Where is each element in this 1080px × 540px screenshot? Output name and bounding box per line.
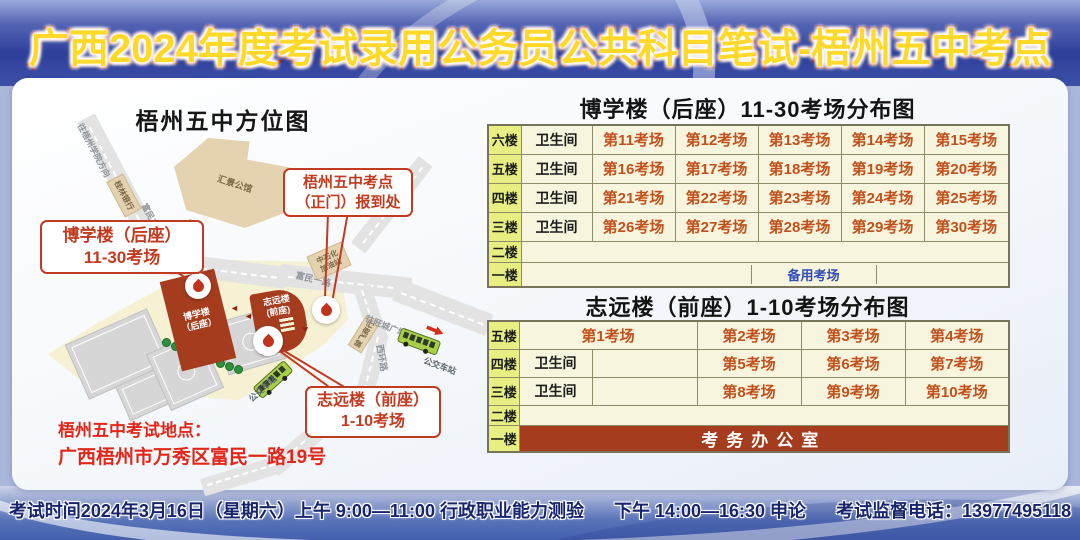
- room-cell: 第5考场: [697, 349, 801, 377]
- room-cell: 第8考场: [697, 377, 801, 405]
- direction-arrow-icon: [425, 323, 445, 338]
- huijing-mansion-building: 汇景公馆: [174, 138, 296, 228]
- room-cell: 第25考场: [924, 183, 1009, 212]
- room-cell: 第20考场: [924, 154, 1009, 183]
- room-cell: 第1考场: [519, 321, 697, 349]
- map-pin-zhiyuan: [253, 326, 283, 356]
- room-cell: 第4考场: [905, 321, 1009, 349]
- floor-label: 三楼: [488, 212, 521, 241]
- exam-address-title: 梧州五中考试地点：: [58, 418, 326, 444]
- room-cell: 第18考场: [758, 154, 841, 183]
- callout-boxue-line1: 博学楼（后座）: [46, 225, 198, 247]
- huijing-mansion-label: 汇景公馆: [216, 171, 254, 194]
- room-cell: 第22考场: [675, 183, 758, 212]
- room-cell: 第19考场: [841, 154, 924, 183]
- floor-label: 一楼: [488, 425, 519, 452]
- room-cell: 第10考场: [905, 377, 1009, 405]
- table-row: 五楼 第1考场 第2考场 第3考场 第4考场: [488, 321, 1009, 349]
- table-row: 四楼 卫生间 第5考场 第6考场 第7考场: [488, 349, 1009, 377]
- room-cell: 第21考场: [592, 183, 675, 212]
- floor-label: 一楼: [488, 262, 521, 287]
- room-cell: 第12考场: [675, 125, 758, 154]
- room-cell: 第3考场: [801, 321, 905, 349]
- room-cell: 第16考场: [592, 154, 675, 183]
- supervision-phone: 考试监督电话：13977495118: [836, 497, 1071, 523]
- restroom-cell: 卫生间: [519, 377, 592, 405]
- callout-boxue: 博学楼（后座） 11-30考场: [40, 220, 204, 274]
- restroom-cell: 卫生间: [521, 212, 592, 241]
- floor-label: 三楼: [488, 377, 519, 405]
- room-cell: 第11考场: [592, 125, 675, 154]
- stairs-icon: [279, 315, 296, 333]
- callout-zhiyuan: 志远楼（前座） 1-10考场: [305, 386, 441, 438]
- floor-label: 五楼: [488, 321, 519, 349]
- floor1-cell: 备用考场: [521, 262, 1009, 287]
- empty-segment: [522, 265, 752, 284]
- map-title: 梧州五中方位图: [68, 102, 378, 136]
- boxue-table-title: 博学楼（后座）11-30考场分布图: [487, 92, 1008, 124]
- table-row: 三楼 卫生间 第26考场 第27考场 第28考场 第29考场 第30考场: [488, 212, 1009, 241]
- exam-office-cell: 考务办公室: [519, 425, 1009, 452]
- restroom-cell: 卫生间: [521, 154, 592, 183]
- location-map: 梧州五中方位图 往梧州学院方向 富民二路 富民一路 往旺城广场方向 西环路 汇景…: [28, 92, 476, 484]
- page-title: 广西2024年度考试录用公务员公共科目笔试-梧州五中考点: [0, 16, 1080, 74]
- callout-zhiyuan-line2: 1-10考场: [311, 412, 435, 433]
- exam-schedule-footer: 考试时间2024年3月16日（星期六）上午 9:00—11:00 行政职业能力测…: [0, 497, 1080, 523]
- floor-label: 二楼: [488, 241, 521, 262]
- empty-cell: [592, 377, 697, 405]
- table-row: 六楼 卫生间 第11考场 第12考场 第13考场 第14考场 第15考场: [488, 125, 1009, 154]
- reserve-room-cell: 备用考场: [752, 265, 877, 284]
- callout-gate-line1: 梧州五中考点: [289, 173, 407, 193]
- room-cell: 第6考场: [801, 349, 905, 377]
- table-row: 五楼 卫生间 第16考场 第17考场 第18考场 第19考场 第20考场: [488, 154, 1009, 183]
- tree-icon: [162, 338, 171, 347]
- callout-boxue-line2: 11-30考场: [46, 247, 198, 269]
- path-arrow-icon: ◄: [230, 304, 239, 313]
- map-pin-gate: [312, 296, 340, 324]
- tree-icon: [225, 362, 234, 371]
- floor-label: 二楼: [488, 405, 519, 425]
- callout-gate-line2: （正门）报到处: [289, 193, 407, 213]
- room-cell: 第14考场: [841, 125, 924, 154]
- schedule-morning: 考试时间2024年3月16日（星期六）上午 9:00—11:00 行政职业能力测…: [9, 497, 584, 523]
- table-row: 二楼: [488, 405, 1009, 425]
- room-cell: 第24考场: [841, 183, 924, 212]
- table-row: 三楼 卫生间 第8考场 第9考场 第10考场: [488, 377, 1009, 405]
- room-cell: 第29考场: [841, 212, 924, 241]
- room-cell: 第2考场: [697, 321, 801, 349]
- room-cell: 第13考场: [758, 125, 841, 154]
- empty-floor-cell: [519, 405, 1009, 425]
- zhiyuan-table-title: 志远楼（前座）1-10考场分布图: [487, 290, 1008, 322]
- floor-label: 六楼: [488, 125, 521, 154]
- exam-address-text: 广西梧州市万秀区富民一路19号: [58, 444, 326, 473]
- table-row: 一楼 备用考场: [488, 262, 1009, 287]
- table-row: 二楼: [488, 241, 1009, 262]
- room-cell: 第28考场: [758, 212, 841, 241]
- tree-icon: [234, 365, 243, 374]
- schedule-afternoon: 下午 14:00—16:30 申论: [614, 497, 806, 523]
- restroom-cell: 卫生间: [519, 349, 592, 377]
- callout-gate: 梧州五中考点 （正门）报到处: [283, 168, 413, 217]
- room-cell: 第30考场: [924, 212, 1009, 241]
- room-cell: 第26考场: [592, 212, 675, 241]
- empty-segment: [877, 265, 1009, 284]
- path-arrow-icon: ◄: [244, 312, 253, 321]
- exam-address: 梧州五中考试地点： 广西梧州市万秀区富民一路19号: [58, 418, 326, 472]
- room-cell: 第23考场: [758, 183, 841, 212]
- bus-stop-label-right: 公交车站: [422, 354, 458, 377]
- floor-label: 五楼: [488, 154, 521, 183]
- table-row: 一楼 考务办公室: [488, 425, 1009, 452]
- restroom-cell: 卫生间: [521, 183, 592, 212]
- room-cell: 第27考场: [675, 212, 758, 241]
- empty-floor-cell: [521, 241, 1009, 262]
- table-row: 四楼 卫生间 第21考场 第22考场 第23考场 第24考场 第25考场: [488, 183, 1009, 212]
- restroom-cell: 卫生间: [521, 125, 592, 154]
- map-pin-boxue: [185, 273, 211, 299]
- zhiyuan-table: 五楼 第1考场 第2考场 第3考场 第4考场 四楼 卫生间 第5考场 第6考场 …: [487, 320, 1010, 453]
- room-cell: 第9考场: [801, 377, 905, 405]
- room-cell: 第15考场: [924, 125, 1009, 154]
- empty-cell: [592, 349, 697, 377]
- floor-label: 四楼: [488, 183, 521, 212]
- callout-zhiyuan-line1: 志远楼（前座）: [311, 391, 435, 412]
- boxue-table: 六楼 卫生间 第11考场 第12考场 第13考场 第14考场 第15考场 五楼 …: [487, 124, 1010, 288]
- room-cell: 第17考场: [675, 154, 758, 183]
- floor-label: 四楼: [488, 349, 519, 377]
- room-cell: 第7考场: [905, 349, 1009, 377]
